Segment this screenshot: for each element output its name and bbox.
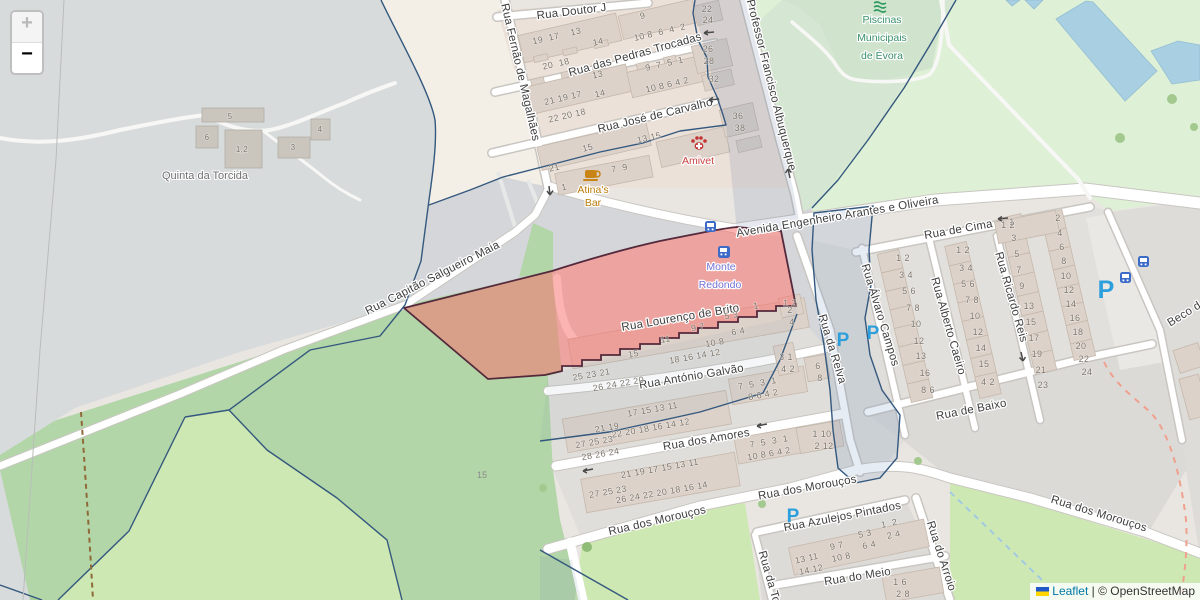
svg-text:1 10: 1 10 <box>812 429 831 439</box>
svg-text:4: 4 <box>789 317 794 327</box>
svg-text:7 8: 7 8 <box>965 295 979 305</box>
svg-text:16: 16 <box>1070 313 1081 323</box>
svg-text:Redondo: Redondo <box>699 279 742 291</box>
svg-text:4: 4 <box>1057 228 1062 238</box>
svg-text:Atina's: Atina's <box>577 184 608 196</box>
svg-text:19: 19 <box>1032 349 1043 359</box>
svg-text:2 12: 2 12 <box>814 441 833 451</box>
svg-text:32: 32 <box>709 74 720 84</box>
svg-text:1,2: 1,2 <box>236 145 248 154</box>
svg-text:de Évora: de Évora <box>861 49 903 62</box>
svg-text:2 8: 2 8 <box>896 589 910 599</box>
svg-text:6: 6 <box>205 133 210 142</box>
svg-text:P: P <box>787 506 800 527</box>
svg-text:7 8: 7 8 <box>906 303 920 313</box>
svg-text:8: 8 <box>1061 256 1066 266</box>
svg-text:9: 9 <box>1019 281 1024 291</box>
svg-text:Monte: Monte <box>706 261 735 273</box>
svg-text:26: 26 <box>703 44 714 54</box>
svg-text:Amivet: Amivet <box>682 155 714 167</box>
svg-text:5 6: 5 6 <box>902 286 916 296</box>
svg-text:21: 21 <box>1036 365 1047 375</box>
svg-text:1 2: 1 2 <box>956 245 970 255</box>
svg-text:16: 16 <box>920 368 931 378</box>
svg-text:1 2: 1 2 <box>1001 220 1015 230</box>
svg-text:12: 12 <box>914 336 925 346</box>
svg-text:4 2: 4 2 <box>781 364 795 374</box>
svg-text:12: 12 <box>1064 285 1075 295</box>
svg-text:5: 5 <box>1014 249 1019 259</box>
svg-text:7: 7 <box>1016 265 1021 275</box>
svg-text:6: 6 <box>815 361 820 371</box>
svg-text:3 1: 3 1 <box>779 352 793 362</box>
svg-text:22: 22 <box>1079 354 1090 364</box>
svg-text:13: 13 <box>1024 301 1035 311</box>
svg-text:3 4: 3 4 <box>959 263 973 273</box>
svg-text:8 6: 8 6 <box>921 385 935 395</box>
svg-text:5: 5 <box>228 112 233 121</box>
svg-text:38: 38 <box>735 123 746 133</box>
svg-text:P: P <box>837 330 850 351</box>
svg-text:20: 20 <box>1076 341 1087 351</box>
svg-text:12: 12 <box>973 327 984 337</box>
svg-text:24: 24 <box>1082 367 1093 377</box>
svg-text:11: 11 <box>660 333 672 345</box>
svg-text:10: 10 <box>1061 271 1072 281</box>
svg-text:Piscinas: Piscinas <box>862 14 901 26</box>
svg-text:P: P <box>1098 276 1115 304</box>
svg-text:15: 15 <box>1026 317 1037 327</box>
svg-text:24: 24 <box>703 15 714 25</box>
svg-text:15: 15 <box>627 348 639 360</box>
svg-text:4: 4 <box>318 125 323 134</box>
svg-text:23: 23 <box>1038 380 1049 390</box>
svg-text:3: 3 <box>1011 233 1016 243</box>
svg-text:Municipais: Municipais <box>857 32 907 44</box>
svg-text:28: 28 <box>704 56 715 66</box>
svg-text:22: 22 <box>702 4 713 14</box>
svg-text:Quinta da Torcida: Quinta da Torcida <box>162 170 249 182</box>
svg-text:1 6: 1 6 <box>893 577 907 587</box>
svg-text:10: 10 <box>911 319 922 329</box>
svg-text:3: 3 <box>291 143 296 152</box>
svg-text:14: 14 <box>1066 299 1077 309</box>
svg-text:18: 18 <box>1073 327 1084 337</box>
svg-text:14: 14 <box>976 343 987 353</box>
svg-text:1 2: 1 2 <box>896 253 910 263</box>
svg-text:3 4: 3 4 <box>899 270 913 280</box>
svg-text:Bar: Bar <box>585 197 602 209</box>
svg-text:17: 17 <box>1029 333 1040 343</box>
svg-text:13: 13 <box>916 351 927 361</box>
svg-text:5 6: 5 6 <box>961 279 975 289</box>
svg-text:4 2: 4 2 <box>981 377 995 387</box>
svg-text:8: 8 <box>817 373 822 383</box>
svg-text:36: 36 <box>733 111 744 121</box>
svg-text:15: 15 <box>477 470 487 480</box>
svg-text:2: 2 <box>1055 213 1060 223</box>
svg-text:P: P <box>867 323 880 344</box>
svg-text:15: 15 <box>979 359 990 369</box>
svg-text:10: 10 <box>970 311 981 321</box>
svg-text:1 2: 1 2 <box>783 298 797 308</box>
